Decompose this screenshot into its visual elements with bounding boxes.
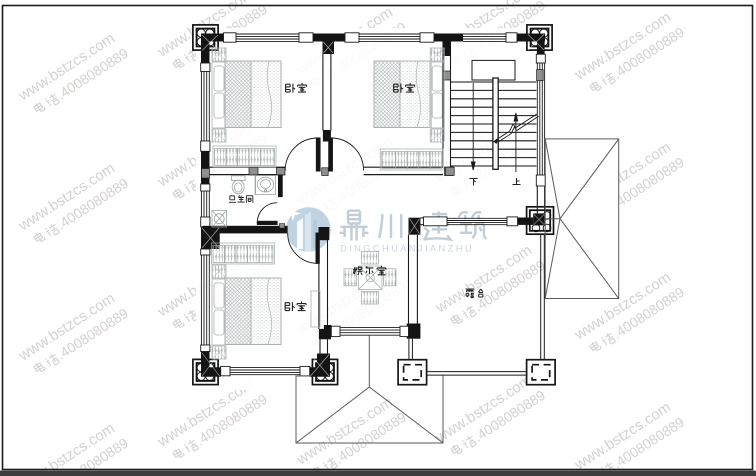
svg-text:DINGCHUANJIANZHU: DINGCHUANJIANZHU <box>340 244 474 254</box>
